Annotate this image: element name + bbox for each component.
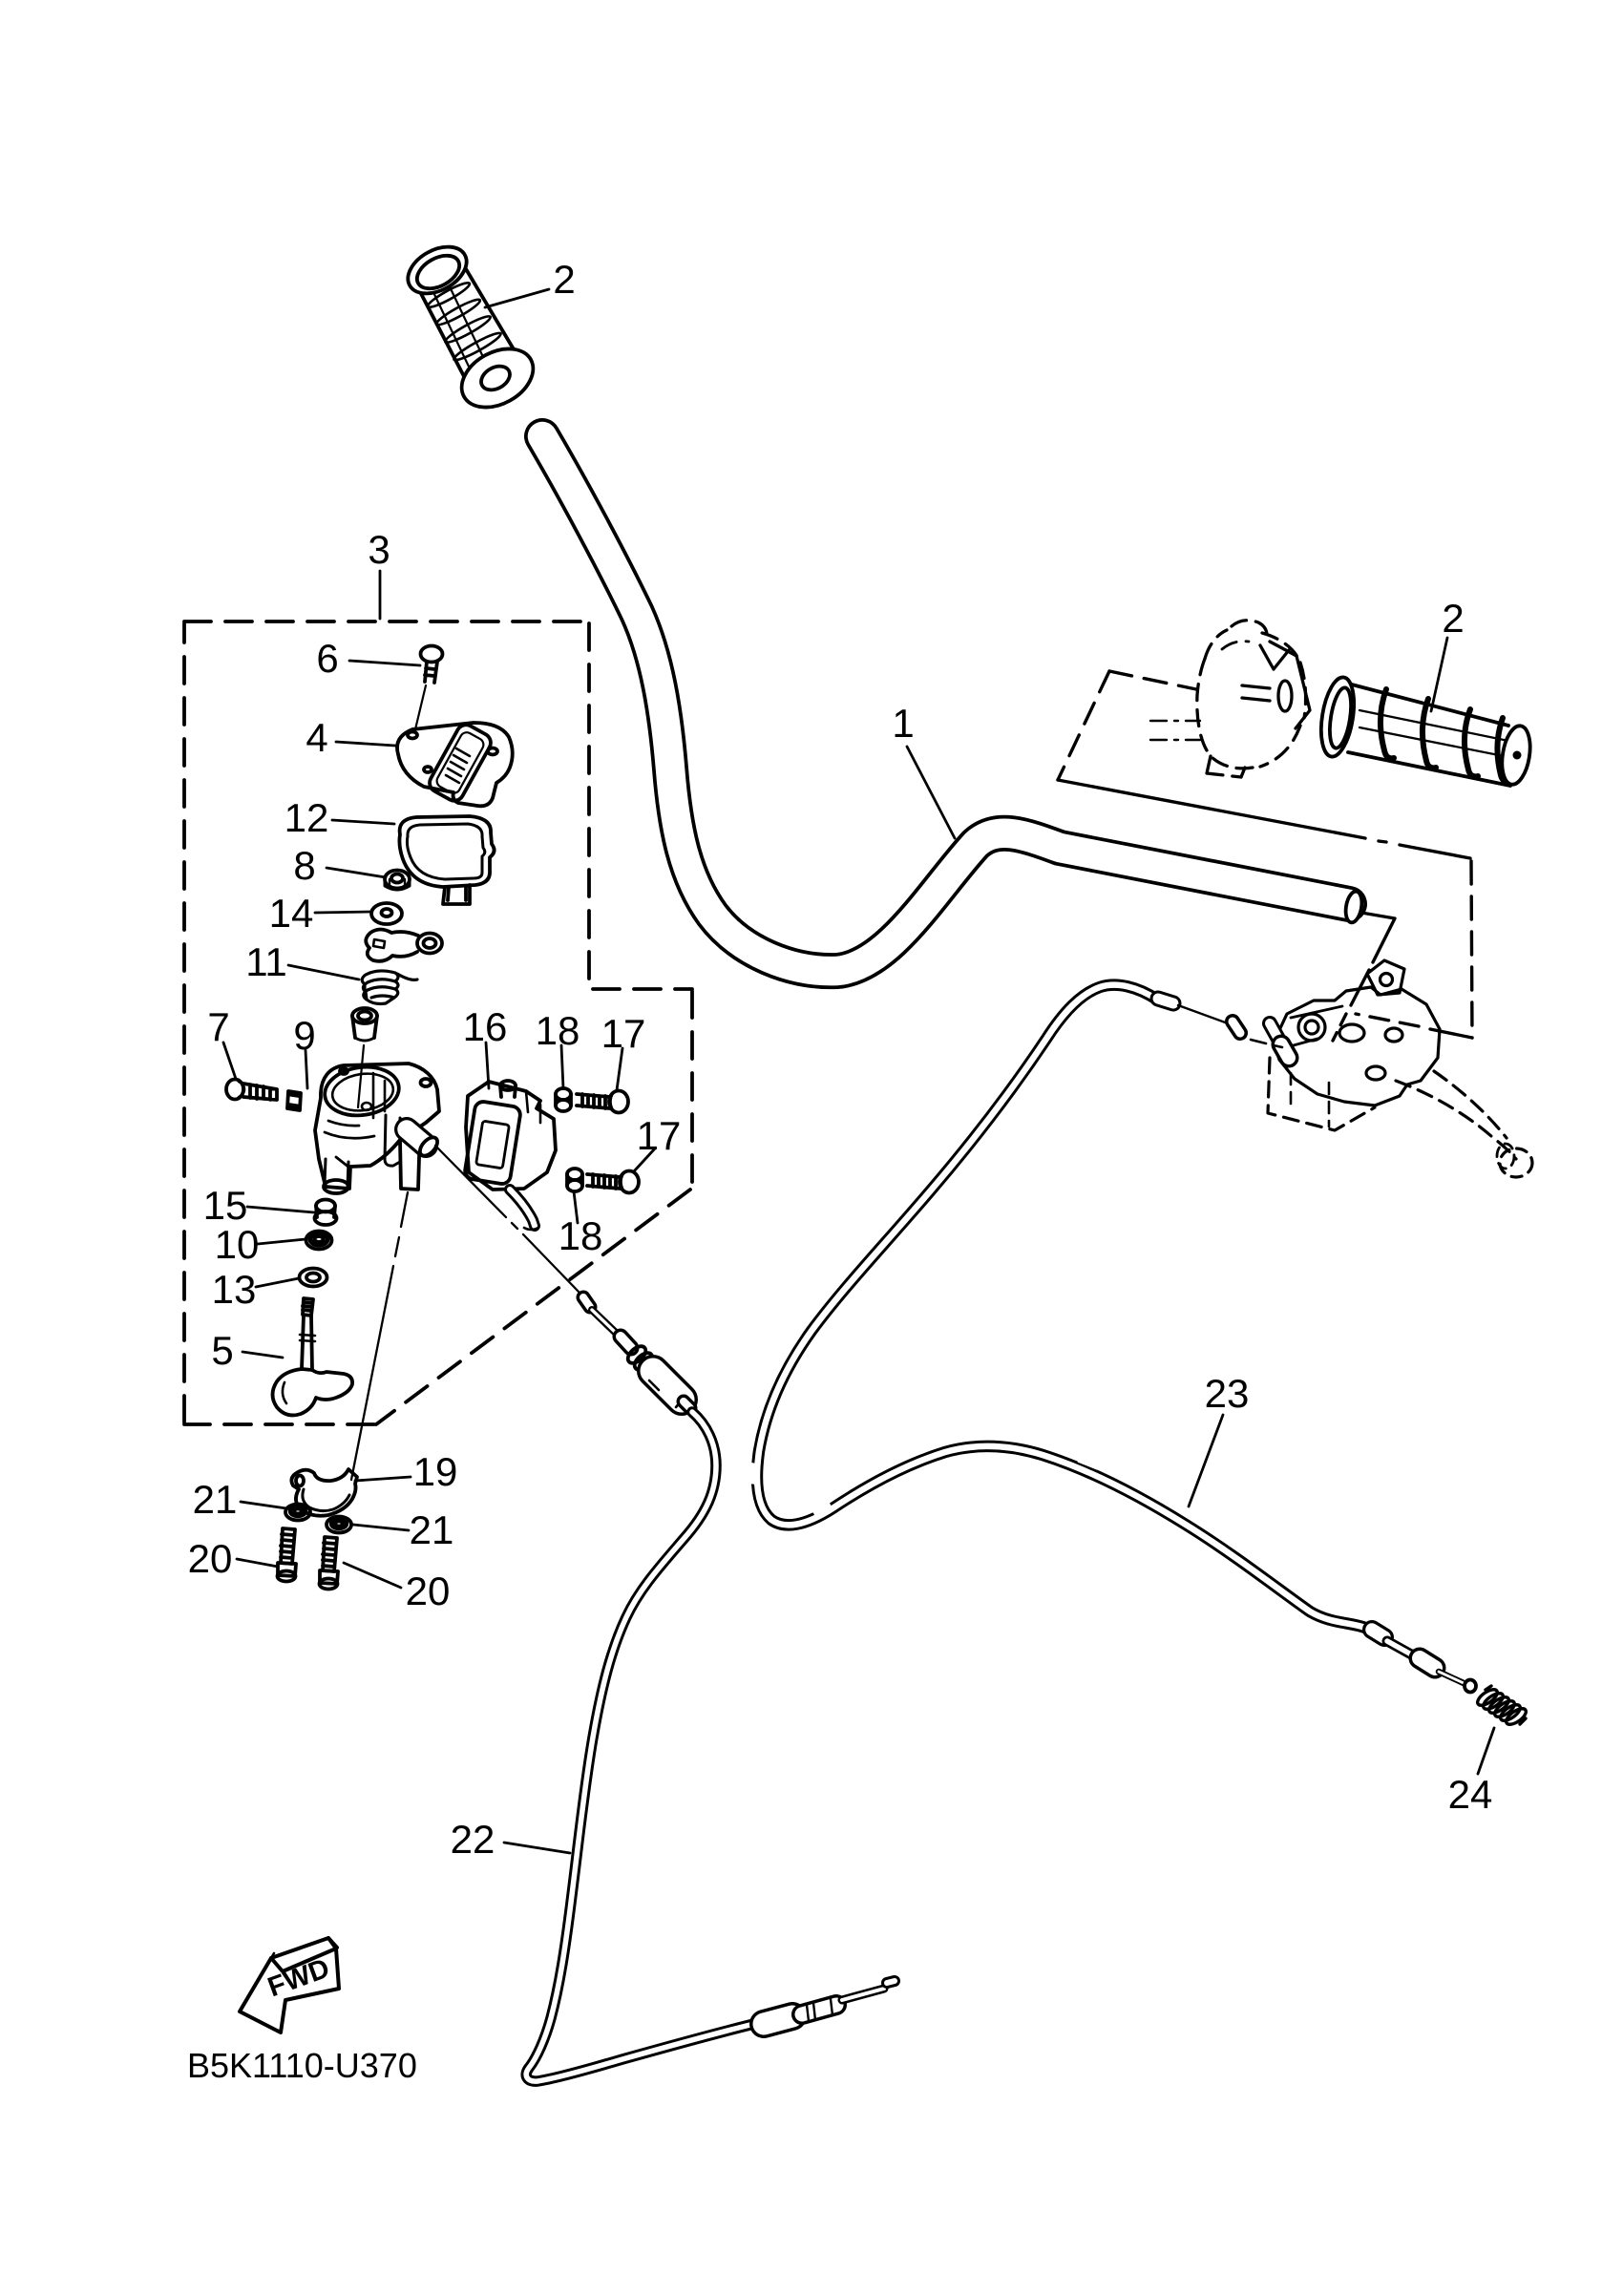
svg-text:9: 9: [293, 1013, 315, 1058]
svg-text:16: 16: [463, 1004, 508, 1049]
svg-text:5: 5: [211, 1328, 233, 1373]
svg-text:1: 1: [892, 701, 914, 746]
svg-text:10: 10: [215, 1222, 260, 1267]
svg-text:2: 2: [553, 257, 575, 302]
svg-text:2: 2: [1442, 596, 1464, 641]
svg-text:11: 11: [245, 939, 287, 984]
svg-text:20: 20: [406, 1569, 451, 1613]
svg-text:14: 14: [269, 891, 314, 936]
svg-text:13: 13: [212, 1267, 257, 1312]
svg-text:3: 3: [368, 527, 390, 572]
svg-text:17: 17: [637, 1113, 682, 1158]
svg-text:B5K1110-U370: B5K1110-U370: [187, 2046, 417, 2085]
svg-text:18: 18: [536, 1008, 580, 1053]
svg-text:20: 20: [188, 1536, 233, 1581]
svg-text:22: 22: [451, 1817, 495, 1862]
svg-text:7: 7: [207, 1004, 229, 1049]
svg-text:24: 24: [1448, 1772, 1493, 1817]
svg-text:4: 4: [306, 715, 327, 760]
svg-text:19: 19: [413, 1449, 458, 1494]
svg-text:18: 18: [559, 1213, 603, 1258]
svg-text:8: 8: [293, 843, 315, 888]
svg-text:12: 12: [285, 795, 329, 840]
svg-text:21: 21: [410, 1507, 454, 1552]
svg-text:6: 6: [316, 636, 338, 681]
svg-text:21: 21: [193, 1477, 238, 1522]
svg-text:17: 17: [601, 1011, 646, 1056]
svg-text:15: 15: [203, 1183, 248, 1228]
svg-text:23: 23: [1205, 1371, 1250, 1416]
